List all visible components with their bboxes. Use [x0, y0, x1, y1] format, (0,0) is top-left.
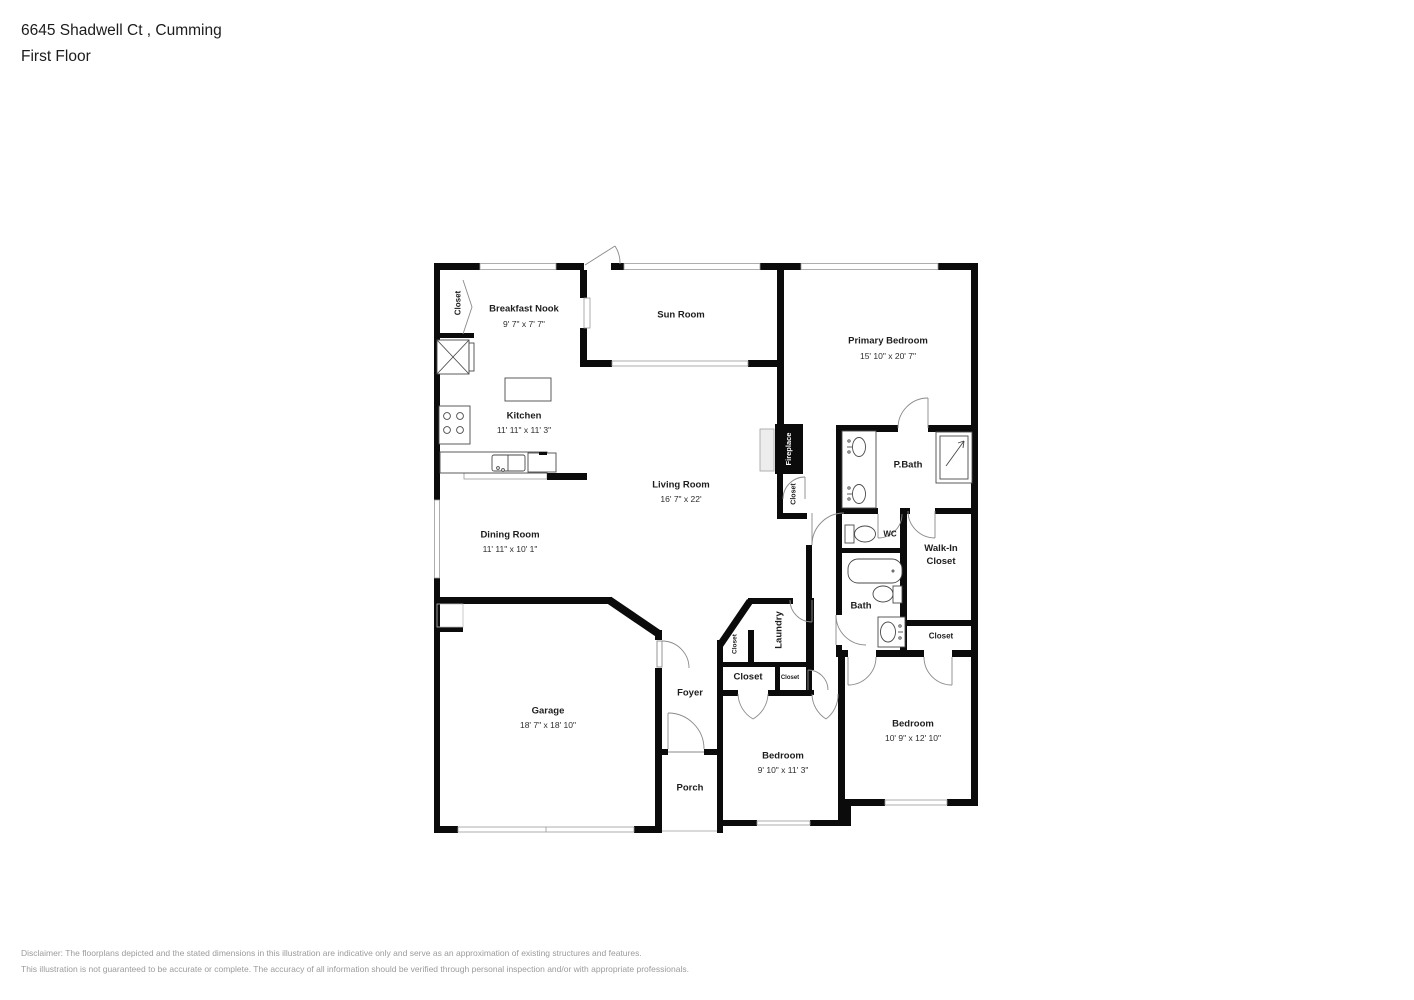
room-dims-breakfast-nook: 9' 7" x 7' 7"	[503, 319, 545, 329]
room-label-bedroom-middle: Bedroom	[762, 751, 804, 764]
room-label-primary-bedroom: Primary Bedroom	[848, 336, 928, 349]
room-label-bedroom-closet-left: Closet	[733, 672, 762, 685]
room-label-porch: Porch	[677, 783, 704, 796]
room-label-suite-closet: Closet	[929, 632, 953, 643]
room-label-laundry: Laundry	[774, 611, 787, 648]
fireplace-label: Fireplace	[784, 433, 794, 466]
room-dims-living-room: 16' 7" x 22'	[660, 494, 701, 504]
room-label-wc: WC	[883, 530, 896, 541]
floorplan-page: 6645 Shadwell Ct , Cumming First Floor	[0, 0, 1414, 1000]
room-label-garage: Garage	[532, 706, 565, 719]
room-label-bedroom-right: Bedroom	[892, 719, 934, 732]
room-label-breakfast-nook: Breakfast Nook	[489, 304, 559, 317]
room-dims-dining-room: 11' 11" x 10' 1"	[483, 544, 538, 554]
room-label-bath: Bath	[850, 601, 871, 614]
floorplan-canvas	[0, 0, 1414, 1000]
room-dims-garage: 18' 7" x 18' 10"	[520, 720, 576, 730]
room-label-living-room: Living Room	[652, 480, 710, 493]
room-dims-bedroom-right: 10' 9" x 12' 10"	[885, 733, 941, 743]
room-dims-primary-bedroom: 15' 10" x 20' 7"	[860, 351, 916, 361]
room-dims-bedroom-middle: 9' 10" x 11' 3"	[758, 765, 809, 775]
room-label-walk-in-closet: Walk-In Closet	[914, 543, 968, 569]
disclaimer-line-1: Disclaimer: The floorplans depicted and …	[21, 948, 642, 958]
room-label-dining-room: Dining Room	[480, 530, 539, 543]
room-label-sun-room: Sun Room	[657, 310, 705, 323]
room-label-hall-closet: Closet	[789, 483, 798, 504]
room-label-kitchen: Kitchen	[507, 411, 542, 424]
room-dims-kitchen: 11' 11" x 11' 3"	[497, 425, 551, 435]
disclaimer-line-2: This illustration is not guaranteed to b…	[21, 964, 689, 974]
room-label-bedroom-closet-right: Closet	[781, 674, 799, 682]
room-label-entry-closet: Closet	[454, 291, 465, 315]
room-label-laundry-closet: Closet	[732, 634, 741, 654]
room-label-p-bath: P.Bath	[894, 460, 923, 473]
room-label-foyer: Foyer	[677, 688, 703, 701]
